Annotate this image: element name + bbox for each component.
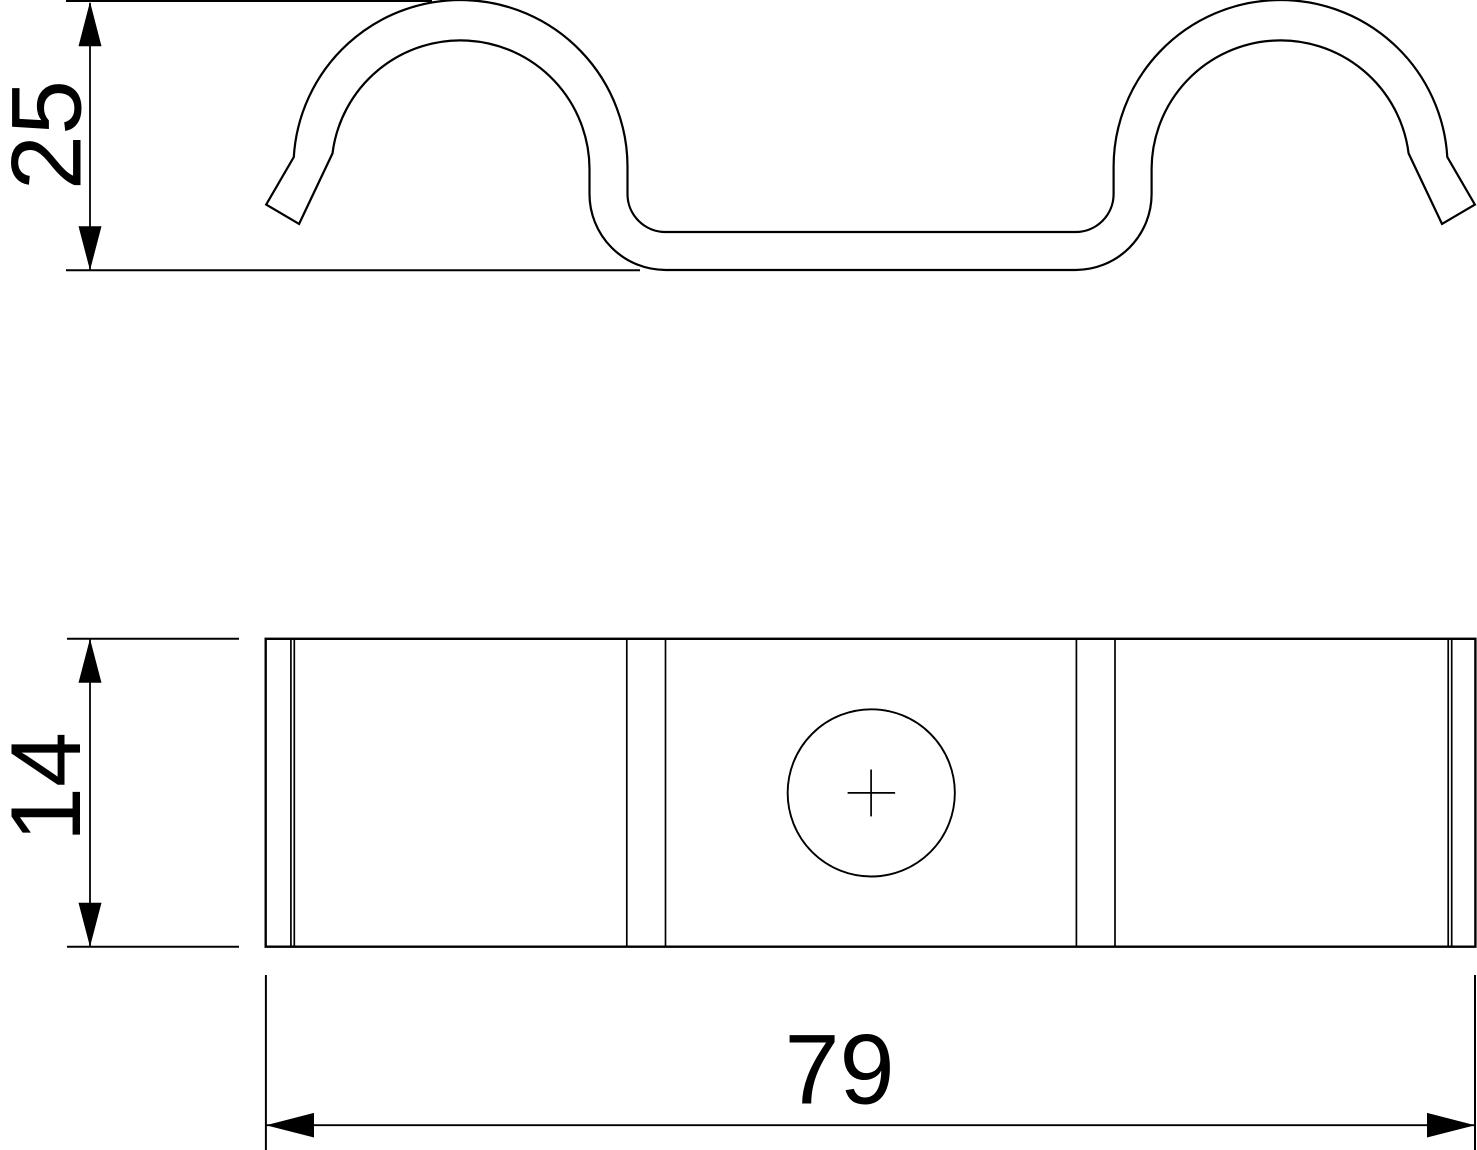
svg-text:79: 79 xyxy=(784,1014,894,1125)
svg-text:14: 14 xyxy=(0,732,101,842)
svg-text:25: 25 xyxy=(0,80,102,190)
